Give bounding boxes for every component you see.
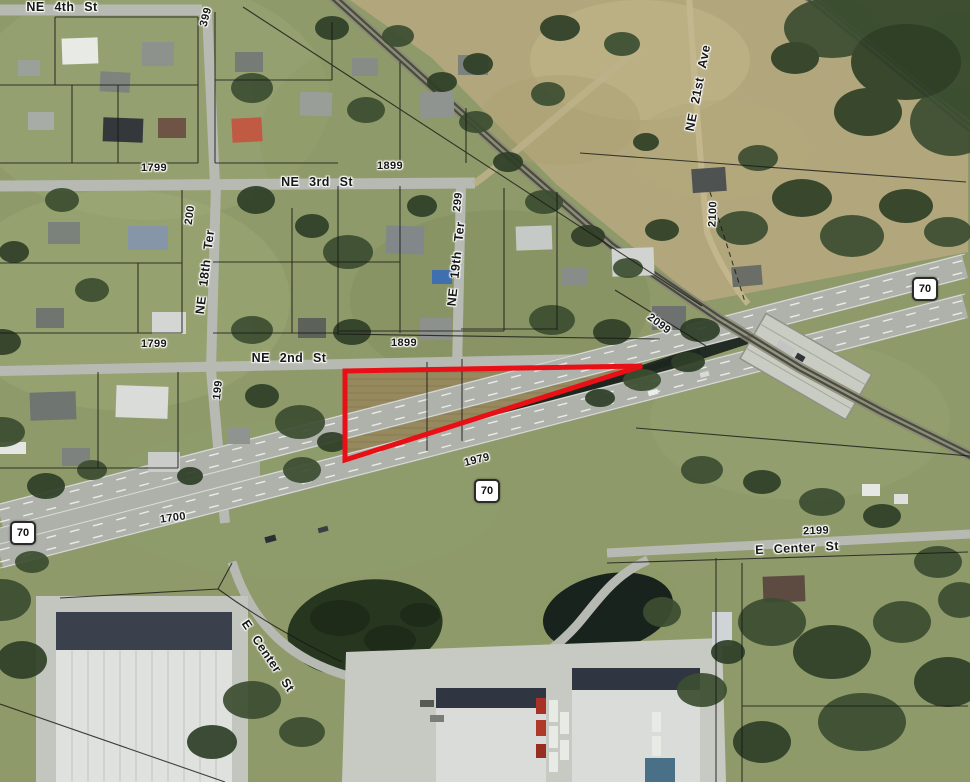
block-label-1799-3rd: 1799 (141, 162, 167, 174)
street-label-ne-3rd-st: NE 3rd St (281, 175, 353, 189)
block-label-1899-3rd: 1899 (377, 160, 403, 172)
route-70-shield-west-label: 70 (17, 527, 29, 539)
route-70-shield-east-label: 70 (919, 283, 931, 295)
block-label-199: 199 (211, 380, 225, 401)
route-70-shield-center: 70 (474, 479, 500, 503)
aerial-imagery (0, 0, 970, 782)
block-label-299: 299 (451, 192, 465, 213)
block-label-2100: 2100 (707, 201, 720, 227)
block-label-1899-2nd: 1899 (391, 337, 417, 349)
block-label-2199: 2199 (803, 525, 829, 538)
route-70-shield-west: 70 (10, 521, 36, 545)
route-70-shield-center-label: 70 (481, 485, 493, 497)
aerial-map-canvas[interactable]: NE 4th St NE 3rd St NE 2nd St NE 18th Te… (0, 0, 970, 782)
street-label-ne-2nd-st: NE 2nd St (252, 351, 327, 365)
route-70-shield-east: 70 (912, 277, 938, 301)
block-label-1799-2nd: 1799 (141, 338, 167, 350)
street-label-ne-4th-st: NE 4th St (26, 0, 97, 14)
